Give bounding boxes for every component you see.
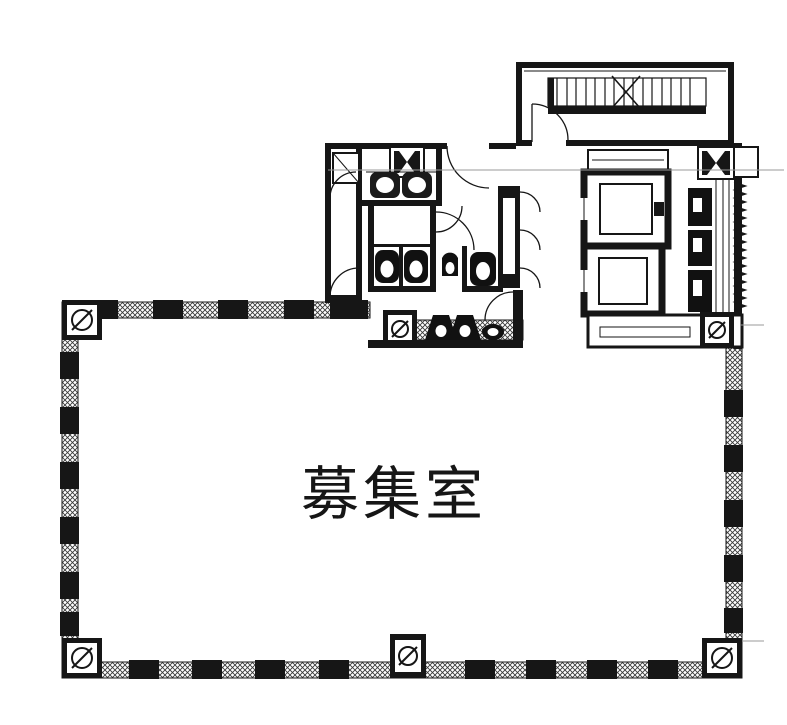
door-swing-icon xyxy=(520,268,540,288)
door-swing-icon xyxy=(520,230,540,250)
column-mark-icon xyxy=(62,300,102,340)
column-mark-icon xyxy=(700,312,734,348)
hand-basin xyxy=(442,253,458,276)
door-swing-icon xyxy=(520,192,540,212)
elevator-icon xyxy=(580,246,662,314)
floor-plan: 募集室 xyxy=(0,0,787,725)
door-swing-icon xyxy=(330,268,359,297)
wash-basin xyxy=(482,324,504,340)
balcony-box xyxy=(734,147,758,177)
staircase-icon xyxy=(548,76,706,114)
column-mark-icon xyxy=(62,638,102,678)
stair-room xyxy=(516,62,734,146)
vent-shaft-icon xyxy=(698,147,734,179)
floor-plan-drawing: 募集室 xyxy=(0,0,787,725)
pipe-space-lines xyxy=(716,180,729,313)
room-label: 募集室 xyxy=(301,462,487,527)
column-mark-icon xyxy=(390,634,426,678)
column-mark-icon xyxy=(702,638,742,678)
stair-handrail xyxy=(548,106,706,114)
urinal-icon xyxy=(425,315,481,340)
elevator-icon xyxy=(580,172,668,246)
door-swing-icon xyxy=(447,146,489,188)
pipe-shaft-icon xyxy=(688,188,712,312)
door-swing-icon xyxy=(485,292,513,320)
